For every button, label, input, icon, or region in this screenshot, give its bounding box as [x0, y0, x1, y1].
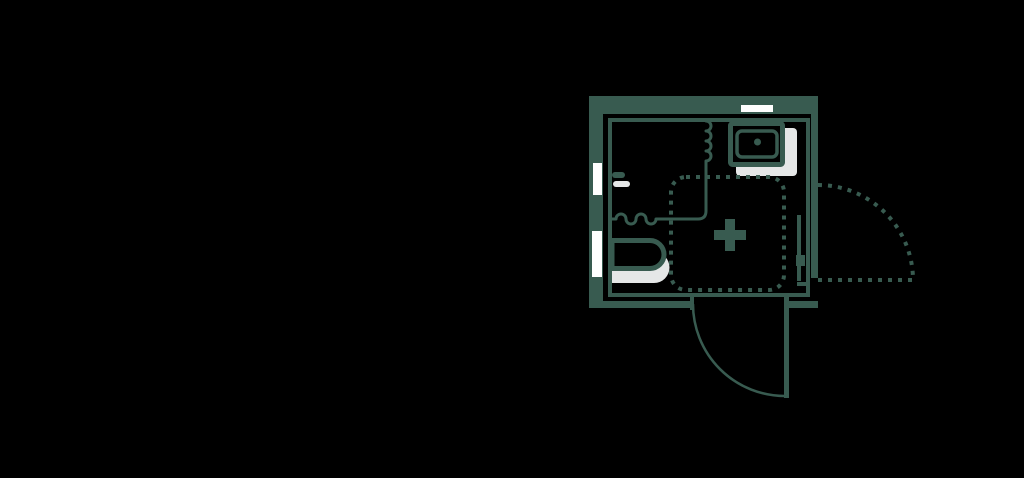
- window-top-icon: [741, 105, 773, 112]
- wall-top: [589, 96, 818, 114]
- bathroom-floor-plan: [0, 0, 1024, 478]
- radiator-panel: [797, 215, 801, 281]
- roll-holder-shadow: [613, 181, 630, 187]
- shower-area: [671, 177, 784, 290]
- roll-holder-icon: [612, 172, 625, 178]
- door-right-swing-arc: [818, 185, 913, 280]
- radiator-foot: [797, 282, 808, 286]
- window-left-upper-icon: [593, 163, 602, 195]
- wall-right: [811, 96, 818, 278]
- radiator-bracket: [796, 255, 805, 266]
- shower-add-plus-icon[interactable]: [714, 219, 746, 251]
- plus-vertical-bar[interactable]: [725, 219, 735, 251]
- washbasin-faucet-icon: [754, 139, 761, 146]
- door-bottom-leaf: [784, 297, 789, 398]
- shower-curtain: [611, 121, 711, 224]
- washbasin: [731, 124, 798, 177]
- wall-bottom-right-segment: [785, 301, 818, 308]
- toilet: [612, 241, 669, 284]
- door-bottom-swing-arc: [693, 304, 785, 396]
- door-bottom: [690, 296, 789, 398]
- toilet-bowl: [612, 241, 664, 269]
- floor-plan-canvas: [0, 0, 1024, 478]
- door-right: [818, 185, 913, 280]
- wall-bottom-left-segment: [589, 301, 693, 308]
- window-left-lower-icon: [592, 231, 602, 277]
- toilet-roll-holder: [612, 172, 630, 187]
